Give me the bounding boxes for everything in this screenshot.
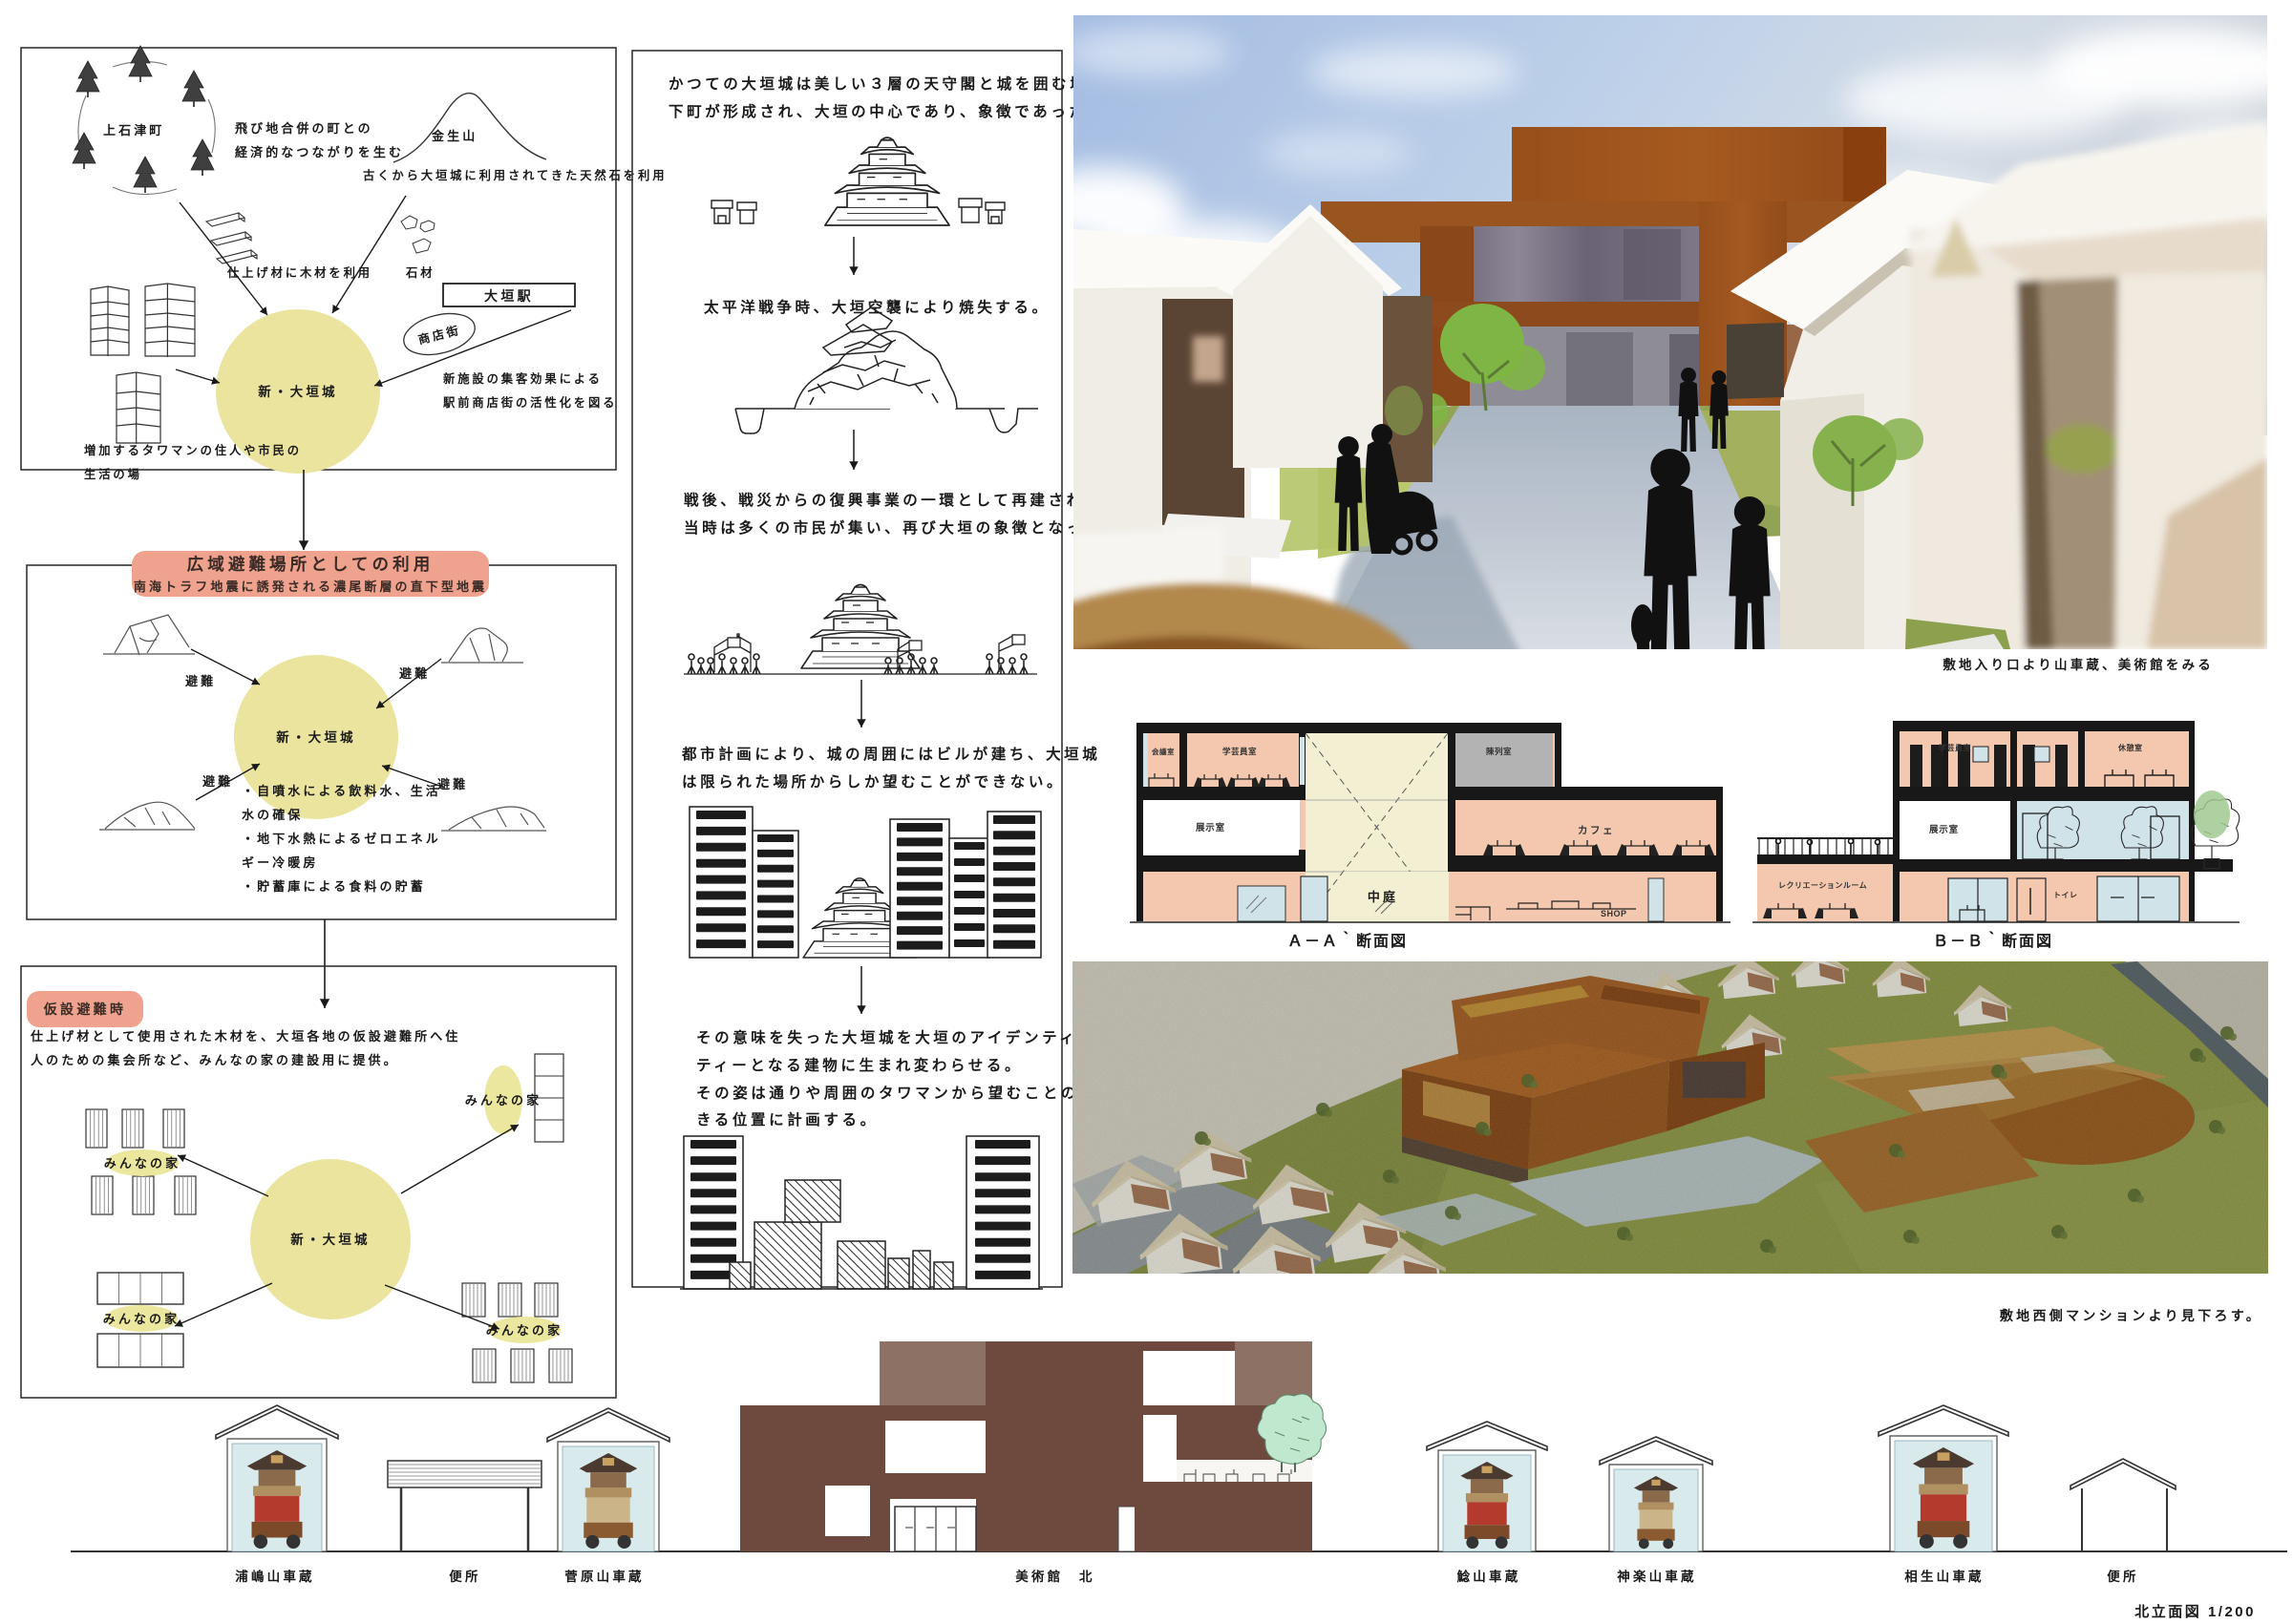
svg-text:相生山車蔵: 相生山車蔵 [1904, 1569, 1985, 1584]
svg-text:避難: 避難 [185, 674, 216, 688]
svg-text:みんなの家: みんなの家 [104, 1156, 181, 1171]
svg-text:北立面図 1/200: 北立面図 1/200 [2134, 1603, 2256, 1620]
svg-text:・自噴水による飲料水、生活: ・自噴水による飲料水、生活 [242, 784, 441, 798]
svg-text:生活の場: 生活の場 [84, 467, 142, 481]
svg-text:新・大垣城: 新・大垣城 [290, 1232, 371, 1247]
svg-text:増加するタワマンの住人や市民の: 増加するタワマンの住人や市民の [84, 443, 302, 457]
svg-text:上石津町: 上石津町 [103, 123, 164, 137]
svg-text:神楽山車蔵: 神楽山車蔵 [1617, 1569, 1697, 1584]
svg-text:ギー冷暖房: ギー冷暖房 [242, 855, 319, 870]
svg-text:会議室: 会議室 [1152, 747, 1175, 756]
svg-text:学芸員室: 学芸員室 [1939, 743, 1971, 752]
svg-text:浦嶋山車蔵: 浦嶋山車蔵 [235, 1569, 315, 1584]
svg-text:・地下水熱によるゼロエネル: ・地下水熱によるゼロエネル [242, 832, 441, 846]
svg-text:人のための集会所など、みんなの家の建設用に提供。: 人のための集会所など、みんなの家の建設用に提供。 [31, 1053, 399, 1067]
svg-text:学芸員室: 学芸員室 [1222, 747, 1257, 756]
svg-text:カフェ: カフェ [1578, 825, 1615, 836]
svg-text:美術館 北: 美術館 北 [1015, 1569, 1095, 1584]
svg-text:飛び地合併の町との: 飛び地合併の町との [234, 121, 373, 136]
svg-text:・貯蓄庫による食料の貯蓄: ・貯蓄庫による食料の貯蓄 [242, 879, 426, 894]
svg-text:新・大垣城: 新・大垣城 [276, 729, 356, 745]
svg-text:避難: 避難 [437, 777, 468, 791]
svg-text:水の確保: 水の確保 [242, 808, 303, 822]
svg-text:南海トラフ地震に誘発される濃尾断層の直下型地震: 南海トラフ地震に誘発される濃尾断層の直下型地震 [134, 580, 487, 594]
svg-text:SHOP: SHOP [1601, 909, 1627, 918]
svg-text:陳列室: 陳列室 [1486, 747, 1512, 756]
svg-text:中庭: 中庭 [1368, 890, 1398, 904]
svg-text:便所: 便所 [449, 1569, 480, 1584]
svg-text:鯰山車蔵: 鯰山車蔵 [1456, 1569, 1521, 1584]
svg-text:展示室: 展示室 [1196, 822, 1225, 833]
svg-text:太平洋戦争時、大垣空襲により焼失する。: 太平洋戦争時、大垣空襲により焼失する。 [704, 298, 1051, 316]
svg-text:きる位置に計画する。: きる位置に計画する。 [696, 1110, 879, 1128]
svg-text:Ｂ－Ｂ｀断面図: Ｂ－Ｂ｀断面図 [1933, 931, 2053, 950]
svg-text:新施設の集客効果による: 新施設の集客効果による [443, 371, 603, 386]
svg-text:ティーとなる建物に生まれ変わらせる。: ティーとなる建物に生まれ変わらせる。 [696, 1056, 1023, 1074]
svg-text:は限られた場所からしか望むことができない。: は限られた場所からしか望むことができない。 [682, 772, 1065, 791]
svg-text:古くから大垣城に利用されてきた天然石を利用: 古くから大垣城に利用されてきた天然石を利用 [363, 168, 667, 182]
svg-text:Ａ－Ａ｀断面図: Ａ－Ａ｀断面図 [1287, 931, 1408, 950]
svg-text:大垣駅: 大垣駅 [484, 288, 534, 304]
svg-text:休憩室: 休憩室 [2117, 743, 2143, 752]
svg-text:金生山: 金生山 [431, 129, 478, 143]
svg-text:石材: 石材 [405, 265, 435, 280]
svg-text:経済的なつながりを生む: 経済的なつながりを生む [235, 145, 404, 159]
svg-text:敷地入り口より山車蔵、美術館をみる: 敷地入り口より山車蔵、美術館をみる [1943, 657, 2214, 672]
svg-text:仮設避難時: 仮設避難時 [43, 1002, 127, 1017]
svg-text:かつての大垣城は美しい３層の天守閣と城を囲む城: かつての大垣城は美しい３層の天守閣と城を囲む城 [669, 74, 1088, 93]
svg-text:戦後、戦災からの復興事業の一環として再建され、: 戦後、戦災からの復興事業の一環として再建され、 [684, 491, 1103, 509]
svg-text:下町が形成され、大垣の中心であり、象徴であった。: 下町が形成され、大垣の中心であり、象徴であった。 [669, 102, 1106, 120]
svg-text:敷地西側マンションより見下ろす。: 敷地西側マンションより見下ろす。 [2000, 1308, 2262, 1323]
svg-text:都市計画により、城の周囲にはビルが建ち、大垣城: 都市計画により、城の周囲にはビルが建ち、大垣城 [681, 745, 1100, 763]
svg-text:広域避難場所としての利用: 広域避難場所としての利用 [187, 555, 435, 574]
svg-text:トイレ: トイレ [2053, 891, 2078, 899]
svg-text:展示室: 展示室 [1929, 824, 1959, 835]
svg-text:その意味を失った大垣城を大垣のアイデンティ: その意味を失った大垣城を大垣のアイデンティ [696, 1028, 1077, 1046]
svg-text:当時は多くの市民が集い、再び大垣の象徴となった。: 当時は多くの市民が集い、再び大垣の象徴となった。 [684, 518, 1121, 537]
svg-text:新・大垣城: 新・大垣城 [258, 384, 338, 399]
svg-text:みんなの家: みんなの家 [486, 1323, 563, 1338]
svg-text:仕上げ材として使用された木材を、大垣各地の仮設避難所へ住: 仕上げ材として使用された木材を、大垣各地の仮設避難所へ住 [30, 1029, 460, 1044]
svg-text:便所: 便所 [2107, 1569, 2138, 1584]
svg-text:商店街: 商店街 [416, 323, 462, 348]
svg-text:その姿は通りや周囲のタワマンから望むことので: その姿は通りや周囲のタワマンから望むことので [696, 1084, 1097, 1102]
svg-text:仕上げ材に木材を利用: 仕上げ材に木材を利用 [226, 265, 372, 280]
svg-text:みんなの家: みんなの家 [465, 1093, 542, 1107]
svg-text:菅原山車蔵: 菅原山車蔵 [564, 1569, 645, 1584]
svg-text:駅前商店街の活性化を図る: 駅前商店街の活性化を図る [442, 395, 617, 410]
svg-text:みんなの家: みんなの家 [103, 1312, 180, 1326]
svg-text:レクリエーションルーム: レクリエーションルーム [1778, 880, 1867, 890]
